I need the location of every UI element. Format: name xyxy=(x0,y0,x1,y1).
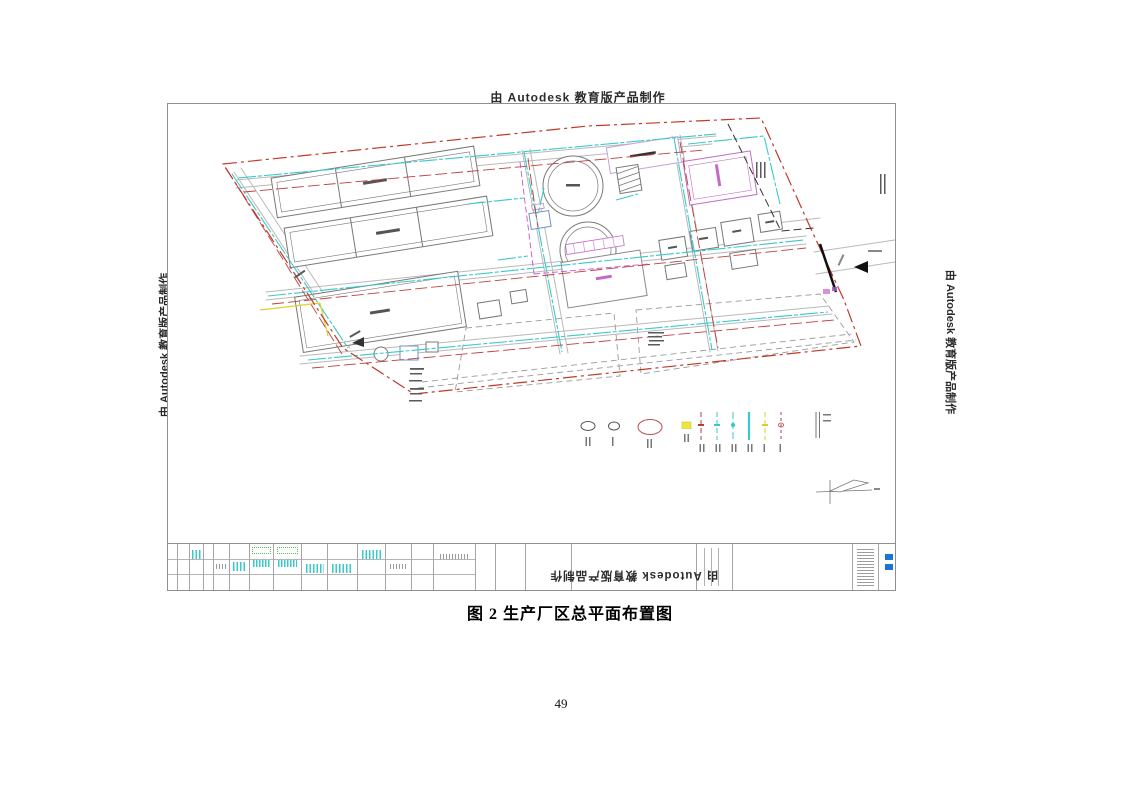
pump-house xyxy=(528,203,552,230)
tb-col-8 xyxy=(274,544,302,590)
figure-caption: 图 2 生产厂区总平面布置图 xyxy=(467,600,673,624)
legend-ellipse-small xyxy=(581,422,595,431)
tb-col-6 xyxy=(230,544,250,590)
company-logo-icon xyxy=(882,554,893,562)
north-arrow xyxy=(816,480,880,504)
tb-divider-2 xyxy=(496,544,526,590)
legend-ellipse-small-2 xyxy=(609,422,620,430)
tb-col-12 xyxy=(386,544,412,590)
hatched-structure xyxy=(616,164,642,193)
buildings xyxy=(271,137,787,361)
legend-yellow-square xyxy=(682,422,691,429)
autodesk-watermark-right: 由 Autodesk 教育版产品制作 xyxy=(943,270,959,414)
scale-note-block xyxy=(409,368,424,402)
cad-sheet-frame: 由 Autodesk 教育版产品制作 xyxy=(167,103,896,591)
tb-col-1 xyxy=(168,544,178,590)
entrance-arrow xyxy=(854,261,868,273)
tb-col-10 xyxy=(328,544,358,590)
page-number: 49 xyxy=(555,696,568,712)
title-block-left-columns xyxy=(168,544,476,590)
tb-col-5 xyxy=(214,544,230,590)
tb-divider-1 xyxy=(476,544,496,590)
basin-3 xyxy=(295,271,467,352)
tb-micro-text xyxy=(697,544,733,590)
legend-label-smudges xyxy=(586,414,832,452)
tb-col-4 xyxy=(204,544,214,590)
tb-logo-cell xyxy=(879,544,895,590)
tb-empty xyxy=(733,544,853,590)
tb-col-2 xyxy=(178,544,190,590)
document-page: 由 Autodesk 教育版产品制作 由 Autodesk 教育版产品制作 由 … xyxy=(0,0,1122,793)
tb-col-9 xyxy=(302,544,328,590)
company-logo-icon-2 xyxy=(882,564,893,572)
tb-col-3 xyxy=(190,544,204,590)
site-plan-svg xyxy=(168,104,895,544)
building-cluster-east xyxy=(657,211,787,280)
legend-ellipse-red xyxy=(638,420,662,435)
title-block: 由 Autodesk 教育版产品制作 xyxy=(168,543,895,590)
tb-col-11 xyxy=(358,544,386,590)
tb-rotated-text xyxy=(853,544,879,590)
autodesk-watermark-bottom: 由 Autodesk 教育版产品制作 xyxy=(550,568,719,584)
tb-col-13 xyxy=(412,544,434,590)
tb-col-14 xyxy=(434,544,476,590)
small-buildings-south xyxy=(476,289,529,319)
tb-watermark-cell: 由 Autodesk 教育版产品制作 xyxy=(572,544,697,590)
tb-col-7 xyxy=(250,544,274,590)
legend-row xyxy=(581,412,831,452)
clarifier-tank-1 xyxy=(543,156,603,216)
